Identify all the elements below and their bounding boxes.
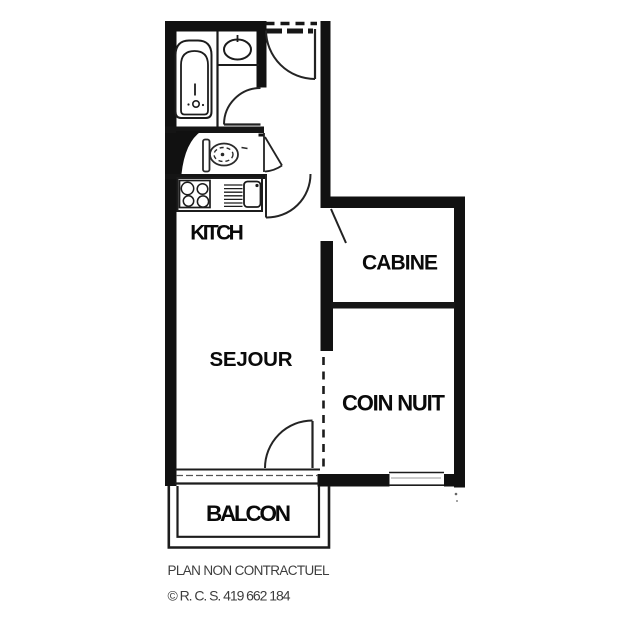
svg-text:KITCH: KITCH	[190, 222, 244, 245]
svg-text:SEJOUR: SEJOUR	[210, 348, 293, 371]
svg-text:© R. C. S. 419 662 184: © R. C. S. 419 662 184	[168, 588, 291, 604]
svg-text:COIN NUIT: COIN NUIT	[342, 391, 446, 416]
svg-text:CABINE: CABINE	[362, 252, 438, 275]
svg-text:BALCON: BALCON	[206, 501, 291, 526]
svg-text:PLAN NON CONTRACTUEL: PLAN NON CONTRACTUEL	[168, 563, 330, 578]
